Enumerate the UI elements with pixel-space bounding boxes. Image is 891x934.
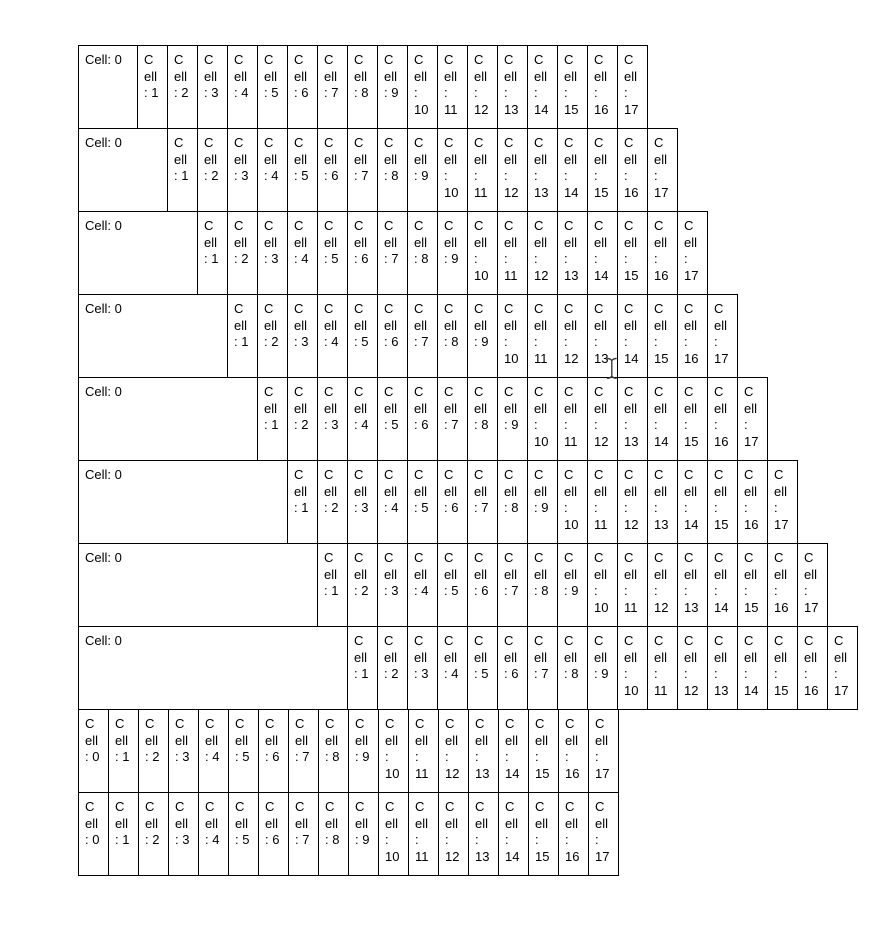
table-row: Cell: 0C ell : 1C ell : 2C ell : 3C ell … [78,626,858,710]
table-cell[interactable]: C ell : 8 [318,792,349,876]
table-cell[interactable]: C ell : 4 [257,128,288,212]
table-cell[interactable]: C ell : 4 [227,45,258,129]
table-cell[interactable]: C ell : 15 [617,211,648,295]
table-cell[interactable]: C ell : 12 [587,377,618,461]
table-cell[interactable]: C ell : 13 [557,211,588,295]
table-cell[interactable]: C ell : 7 [347,128,378,212]
table-cell[interactable]: C ell : 3 [168,792,199,876]
table-cell[interactable]: Cell: 0 [78,45,138,129]
table-cell[interactable]: C ell : 4 [377,460,408,544]
table-cell[interactable]: C ell : 15 [677,377,708,461]
table-cell[interactable]: C ell : 1 [167,128,198,212]
table-cell[interactable]: C ell : 14 [587,211,618,295]
table-cell[interactable]: C ell : 11 [557,377,588,461]
table-cell[interactable]: C ell : 15 [767,626,798,710]
table-cell[interactable]: C ell : 8 [527,543,558,627]
table-cell[interactable]: C ell : 5 [317,211,348,295]
table-cell[interactable]: C ell : 2 [377,626,408,710]
table-cell[interactable]: C ell : 9 [348,709,379,793]
table-cell[interactable]: C ell : 11 [617,543,648,627]
table-cell[interactable]: C ell : 5 [228,709,259,793]
table-cell[interactable]: C ell : 2 [138,792,169,876]
table-cell[interactable]: Cell: 0 [78,377,258,461]
table-cell[interactable]: Cell: 0 [78,211,198,295]
table-cell[interactable]: C ell : 6 [258,792,289,876]
table-cell[interactable]: C ell : 3 [347,460,378,544]
table-cell[interactable]: C ell : 10 [378,709,409,793]
table-cell[interactable]: C ell : 0 [78,792,109,876]
table-cell[interactable]: C ell : 10 [407,45,438,129]
table-cell[interactable]: C ell : 8 [497,460,528,544]
table-cell[interactable]: C ell : 10 [378,792,409,876]
table-cell[interactable]: C ell : 2 [317,460,348,544]
table-cell[interactable]: C ell : 9 [407,128,438,212]
table-cell[interactable]: C ell : 10 [497,294,528,378]
table-cell[interactable]: C ell : 17 [617,45,648,129]
table-cell[interactable]: C ell : 11 [497,211,528,295]
table-cell[interactable]: C ell : 7 [527,626,558,710]
table-cell[interactable]: C ell : 15 [528,792,559,876]
table-cell[interactable]: C ell : 6 [377,294,408,378]
table-cell[interactable]: C ell : 8 [318,709,349,793]
table-cell[interactable]: C ell : 16 [707,377,738,461]
table-cell[interactable]: C ell : 1 [287,460,318,544]
table-cell[interactable]: C ell : 4 [437,626,468,710]
table-cell[interactable]: C ell : 1 [347,626,378,710]
table-cell[interactable]: C ell : 3 [168,709,199,793]
table-cell[interactable]: C ell : 11 [527,294,558,378]
table-cell[interactable]: C ell : 2 [138,709,169,793]
table-cell[interactable]: C ell : 12 [647,543,678,627]
table-cell[interactable]: C ell : 4 [407,543,438,627]
table-cell[interactable]: C ell : 7 [467,460,498,544]
table-cell[interactable]: C ell : 12 [467,45,498,129]
table-cell[interactable]: C ell : 17 [647,128,678,212]
table-cell[interactable]: C ell : 16 [587,45,618,129]
table-cell[interactable]: C ell : 9 [587,626,618,710]
table-cell[interactable]: C ell : 16 [617,128,648,212]
table-cell[interactable]: C ell : 14 [527,45,558,129]
table-cell[interactable]: C ell : 5 [467,626,498,710]
table-cell[interactable]: C ell : 2 [197,128,228,212]
table-cell[interactable]: C ell : 6 [437,460,468,544]
table-cell[interactable]: C ell : 15 [707,460,738,544]
table-cell[interactable]: C ell : 6 [347,211,378,295]
table-cell[interactable]: C ell : 3 [377,543,408,627]
table-cell[interactable]: Cell: 0 [78,543,318,627]
table-cell[interactable]: C ell : 7 [377,211,408,295]
table-cell[interactable]: C ell : 14 [677,460,708,544]
table-cell[interactable]: C ell : 8 [467,377,498,461]
table-cell[interactable]: C ell : 6 [497,626,528,710]
table-cell[interactable]: C ell : 14 [557,128,588,212]
table-cell[interactable]: C ell : 16 [558,709,589,793]
table-cell[interactable]: C ell : 16 [767,543,798,627]
table-cell[interactable]: C ell : 11 [437,45,468,129]
table-cell[interactable]: C ell : 16 [797,626,828,710]
table-cell[interactable]: C ell : 10 [587,543,618,627]
table-cell[interactable]: C ell : 1 [137,45,168,129]
table-cell[interactable]: C ell : 13 [617,377,648,461]
table-cell[interactable]: Cell: 0 [78,460,288,544]
table-cell[interactable]: C ell : 10 [617,626,648,710]
table-cell[interactable]: C ell : 15 [587,128,618,212]
table-cell[interactable]: C ell : 11 [587,460,618,544]
table-cell[interactable]: C ell : 12 [677,626,708,710]
table-cell[interactable]: C ell : 17 [767,460,798,544]
table-row: Cell: 0C ell : 1C ell : 2C ell : 3C ell … [78,543,858,627]
table-row: C ell : 0C ell : 1C ell : 2C ell : 3C el… [78,792,858,876]
table-cell[interactable]: C ell : 11 [408,709,439,793]
table-cell[interactable]: C ell : 8 [407,211,438,295]
table-cell[interactable]: C ell : 12 [438,709,469,793]
table-cell[interactable]: C ell : 15 [528,709,559,793]
table-cell[interactable]: C ell : 8 [377,128,408,212]
table-row: Cell: 0C ell : 1C ell : 2C ell : 3C ell … [78,377,858,461]
table-cell[interactable]: C ell : 13 [707,626,738,710]
table-cell[interactable]: C ell : 10 [527,377,558,461]
table-cell[interactable]: C ell : 17 [707,294,738,378]
table-cell[interactable]: C ell : 16 [677,294,708,378]
table-cell[interactable]: C ell : 5 [287,128,318,212]
table-cell[interactable]: C ell : 9 [527,460,558,544]
table-cell[interactable]: C ell : 1 [257,377,288,461]
table-cell[interactable]: C ell : 9 [377,45,408,129]
table-cell[interactable]: C ell : 13 [587,294,618,378]
table-row: Cell: 0C ell : 1C ell : 2C ell : 3C ell … [78,128,858,212]
table-cell[interactable]: C ell : 11 [647,626,678,710]
table-cell[interactable]: C ell : 4 [287,211,318,295]
table-cell[interactable]: C ell : 16 [647,211,678,295]
table-cell[interactable]: C ell : 7 [437,377,468,461]
table-cell[interactable]: C ell : 11 [467,128,498,212]
table-cell[interactable]: C ell : 2 [227,211,258,295]
table-cell[interactable]: C ell : 14 [647,377,678,461]
table-cell[interactable]: C ell : 4 [347,377,378,461]
table-cell[interactable]: C ell : 14 [498,792,529,876]
table-cell[interactable]: C ell : 15 [737,543,768,627]
table-cell[interactable]: C ell : 9 [348,792,379,876]
table-cell[interactable]: Cell: 0 [78,128,168,212]
table-cell[interactable]: C ell : 16 [737,460,768,544]
table-cell[interactable]: C ell : 14 [617,294,648,378]
table-cell[interactable]: C ell : 7 [407,294,438,378]
table-cell[interactable]: C ell : 4 [198,709,229,793]
table-row: Cell: 0C ell : 1C ell : 2C ell : 3C ell … [78,460,858,544]
table-cell[interactable]: C ell : 12 [497,128,528,212]
table-cell[interactable]: C ell : 2 [287,377,318,461]
table-cell[interactable]: C ell : 5 [347,294,378,378]
cell-grid: Cell: 0C ell : 1C ell : 2C ell : 3C ell … [78,45,858,876]
table-cell[interactable]: C ell : 17 [737,377,768,461]
table-cell[interactable]: C ell : 13 [497,45,528,129]
table-cell[interactable]: C ell : 6 [467,543,498,627]
table-cell[interactable]: C ell : 2 [347,543,378,627]
table-cell[interactable]: C ell : 6 [287,45,318,129]
table-cell[interactable]: C ell : 5 [228,792,259,876]
table-cell[interactable]: C ell : 13 [468,792,499,876]
table-row: Cell: 0C ell : 1C ell : 2C ell : 3C ell … [78,294,858,378]
table-cell[interactable]: C ell : 5 [407,460,438,544]
table-cell[interactable]: C ell : 7 [288,709,319,793]
table-cell[interactable]: C ell : 12 [557,294,588,378]
table-cell[interactable]: C ell : 9 [557,543,588,627]
table-cell[interactable]: C ell : 3 [317,377,348,461]
table-cell[interactable]: C ell : 17 [588,792,619,876]
table-cell[interactable]: C ell : 9 [497,377,528,461]
table-cell[interactable]: C ell : 17 [677,211,708,295]
table-cell[interactable]: C ell : 9 [467,294,498,378]
table-cell[interactable]: C ell : 13 [677,543,708,627]
table-cell[interactable]: C ell : 1 [227,294,258,378]
table-cell[interactable]: C ell : 9 [437,211,468,295]
table-cell[interactable]: C ell : 17 [827,626,858,710]
table-cell[interactable]: C ell : 17 [797,543,828,627]
table-cell[interactable]: C ell : 8 [437,294,468,378]
table-cell[interactable]: C ell : 3 [197,45,228,129]
table-cell[interactable]: C ell : 3 [257,211,288,295]
table-cell[interactable]: C ell : 11 [408,792,439,876]
table-cell[interactable]: C ell : 3 [407,626,438,710]
table-cell[interactable]: C ell : 6 [317,128,348,212]
table-row: Cell: 0C ell : 1C ell : 2C ell : 3C ell … [78,211,858,295]
table-cell[interactable]: C ell : 0 [78,709,109,793]
table-cell[interactable]: C ell : 13 [647,460,678,544]
table-cell[interactable]: C ell : 6 [258,709,289,793]
table-cell[interactable]: C ell : 2 [167,45,198,129]
table-cell[interactable]: C ell : 15 [557,45,588,129]
table-cell[interactable]: C ell : 17 [588,709,619,793]
table-cell[interactable]: C ell : 14 [498,709,529,793]
table-cell[interactable]: C ell : 10 [437,128,468,212]
table-cell[interactable]: C ell : 4 [198,792,229,876]
table-cell[interactable]: C ell : 5 [437,543,468,627]
table-row: C ell : 0C ell : 1C ell : 2C ell : 3C el… [78,709,858,793]
table-cell[interactable]: C ell : 14 [707,543,738,627]
table-cell[interactable]: C ell : 14 [737,626,768,710]
table-cell[interactable]: C ell : 6 [407,377,438,461]
table-row: Cell: 0C ell : 1C ell : 2C ell : 3C ell … [78,45,858,129]
table-cell[interactable]: C ell : 3 [227,128,258,212]
table-cell[interactable]: C ell : 1 [108,709,139,793]
table-cell[interactable]: C ell : 3 [287,294,318,378]
table-cell[interactable]: C ell : 1 [317,543,348,627]
table-cell[interactable]: C ell : 8 [347,45,378,129]
table-cell[interactable]: C ell : 13 [468,709,499,793]
table-cell[interactable]: C ell : 12 [438,792,469,876]
table-cell[interactable]: C ell : 5 [257,45,288,129]
table-cell[interactable]: C ell : 2 [257,294,288,378]
table-cell[interactable]: C ell : 1 [108,792,139,876]
table-cell[interactable]: Cell: 0 [78,626,348,710]
table-cell[interactable]: C ell : 12 [617,460,648,544]
table-cell[interactable]: C ell : 12 [527,211,558,295]
table-cell[interactable]: C ell : 10 [557,460,588,544]
table-cell[interactable]: C ell : 5 [377,377,408,461]
table-cell[interactable]: C ell : 15 [647,294,678,378]
table-cell[interactable]: C ell : 7 [288,792,319,876]
table-cell[interactable]: C ell : 1 [197,211,228,295]
table-cell[interactable]: C ell : 13 [527,128,558,212]
table-cell[interactable]: C ell : 8 [557,626,588,710]
table-cell[interactable]: C ell : 7 [497,543,528,627]
table-cell[interactable]: C ell : 4 [317,294,348,378]
table-cell[interactable]: Cell: 0 [78,294,228,378]
table-cell[interactable]: C ell : 7 [317,45,348,129]
table-canvas: Cell: 0C ell : 1C ell : 2C ell : 3C ell … [0,0,891,934]
table-cell[interactable]: C ell : 10 [467,211,498,295]
table-cell[interactable]: C ell : 16 [558,792,589,876]
